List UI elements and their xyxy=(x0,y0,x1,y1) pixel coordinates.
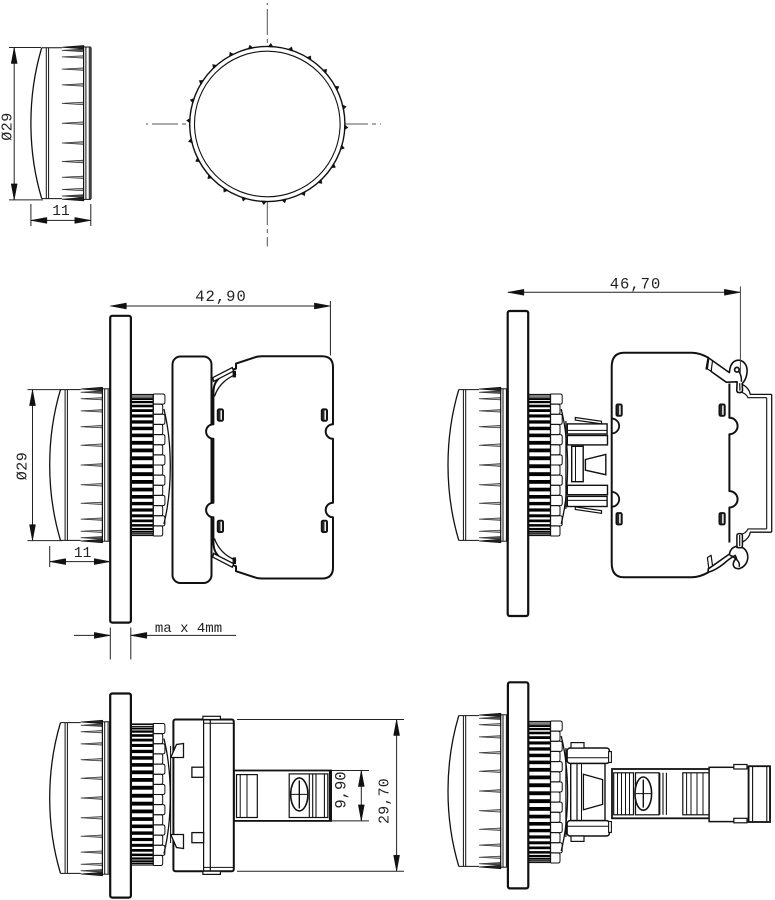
svg-text:11: 11 xyxy=(52,204,69,220)
svg-text:Ø29: Ø29 xyxy=(15,452,32,481)
svg-text:9,90: 9,90 xyxy=(333,771,351,808)
svg-text:ma x 4mm: ma x 4mm xyxy=(155,621,222,637)
svg-text:Ø29: Ø29 xyxy=(0,112,17,141)
svg-text:42,90: 42,90 xyxy=(195,288,247,306)
svg-text:11: 11 xyxy=(74,546,91,562)
svg-text:46,70: 46,70 xyxy=(610,276,662,294)
svg-text:29,70: 29,70 xyxy=(378,778,394,824)
